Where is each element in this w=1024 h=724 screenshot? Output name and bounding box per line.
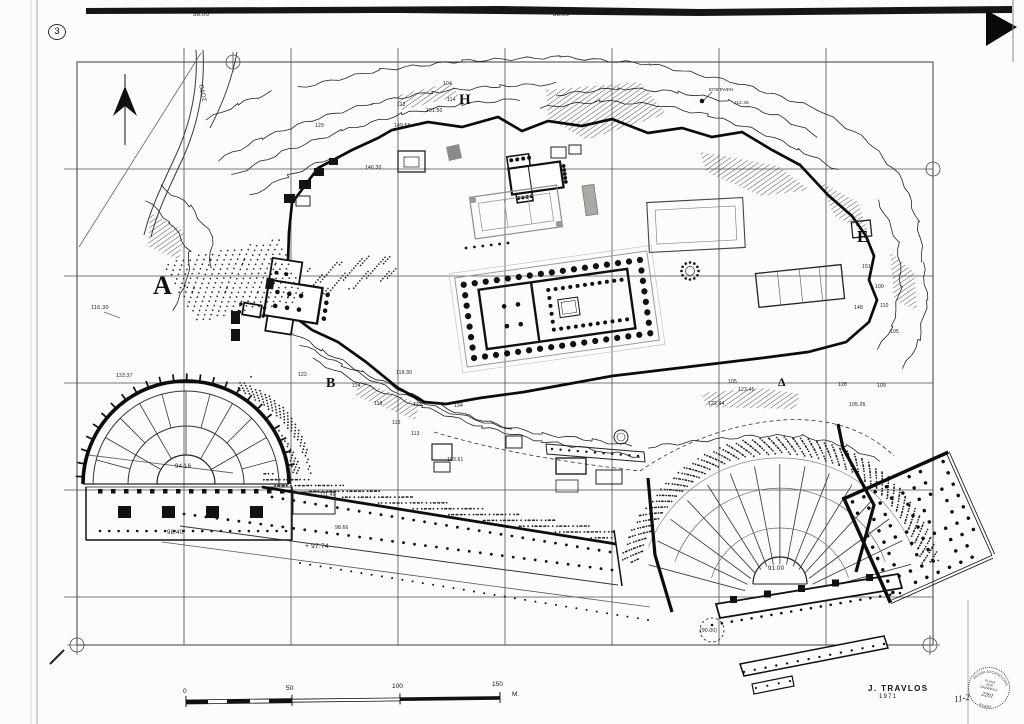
roman-building	[647, 198, 745, 253]
elevation-label: + 97.74	[305, 544, 329, 551]
odeon-stage-piers	[98, 489, 287, 532]
area-letter: B	[326, 377, 335, 391]
parthenon	[449, 245, 665, 372]
elevation-label: 133.37	[116, 374, 133, 379]
elevation-label: 114	[447, 98, 456, 103]
elevation-label: 105.26	[849, 403, 866, 408]
museum-building	[755, 265, 844, 308]
elevation-label: 122.44	[708, 402, 725, 407]
altar	[582, 184, 598, 215]
elevation-label: ΕΠΙΓΡΑΦΗ	[709, 88, 733, 93]
elevation-label: 151.50	[426, 109, 443, 114]
elevation-label: 149.58	[394, 124, 411, 129]
elevation-label: 123	[413, 403, 422, 408]
scale-bar	[186, 692, 500, 707]
stamp-arc-bottom: ATHENS	[978, 702, 993, 711]
gray-pedestal	[446, 144, 462, 161]
north-arrow-icon	[113, 74, 137, 145]
round-temple	[680, 261, 700, 281]
propylaea	[261, 258, 333, 340]
elevation-label: 111.49	[320, 493, 336, 498]
scale-tick-label: 150	[492, 682, 503, 689]
acropolis-circuit-wall	[288, 117, 877, 404]
area-letter: A	[153, 273, 172, 299]
elevation-label: 110	[880, 304, 889, 309]
area-letter: E	[857, 228, 868, 245]
elevation-label: 119.30	[396, 371, 412, 376]
elevation-label: 128	[838, 383, 847, 388]
terrain-hatching	[148, 82, 917, 420]
elevation-label: 105	[728, 380, 737, 385]
grid-marker-circles	[67, 52, 940, 655]
elevation-label: 146.30	[365, 166, 382, 171]
elevation-label: 91.00	[768, 566, 784, 572]
temple-athena-nike	[238, 302, 266, 318]
elevation-label: 151	[862, 265, 871, 270]
scale-tick-label: 0	[183, 689, 187, 696]
registration-arrow-icon	[986, 10, 1017, 46]
elevation-label: 100	[875, 285, 884, 290]
elevation-label: 103.61	[447, 458, 464, 463]
elevation-label: 116.30	[91, 306, 109, 312]
surveyor-name: J. TRAVLOS	[868, 684, 929, 693]
elevation-label: 115	[392, 421, 401, 426]
svg-text:ATHENS: ATHENS	[978, 702, 993, 711]
sheet-number-badge: 3	[48, 24, 66, 40]
area-letter: H	[459, 93, 471, 108]
elevation-label: 129	[315, 124, 324, 129]
plan-drawing	[0, 0, 1024, 724]
surveyor-credit: J. TRAVLOS 1971	[868, 684, 929, 700]
stippled-paths	[166, 239, 639, 457]
scale-tick-label: 100	[392, 684, 403, 691]
elevation-label: 112	[397, 103, 406, 108]
access-roads	[79, 50, 237, 473]
stamp-number: 2201	[981, 692, 994, 700]
elevation-label: (90.00)	[700, 629, 717, 634]
elevation-label: 134	[454, 404, 463, 409]
elevation-label: 118	[374, 402, 383, 407]
elevation-label: 148	[854, 306, 863, 311]
elevation-label: 38.00	[553, 12, 569, 18]
excavation-stamp: AGORA EXCAVATIONS ATHENS PLANS AND DRAWI…	[961, 660, 1017, 716]
elevation-label: 94.16	[175, 464, 191, 470]
elevation-label: 105	[890, 330, 899, 335]
area-letter: Δ	[778, 376, 786, 388]
survey-year: 1971	[879, 694, 929, 700]
elevation-label: 98.40	[167, 530, 183, 536]
elevation-label: 123.46	[738, 388, 755, 393]
stoa-of-eumenes	[162, 473, 650, 621]
erechtheion	[507, 149, 569, 203]
contour-lines	[145, 56, 928, 462]
scan-artifacts	[31, 0, 1017, 724]
scale-tick-label: 50	[286, 686, 293, 693]
elevation-label: 104	[443, 82, 452, 87]
elevation-label: 109	[877, 384, 886, 389]
elevation-label: 112.45	[734, 101, 749, 106]
elevation-label: 114	[352, 384, 361, 389]
acropolis-site-plan-sheet: AHBΔE 38.0038.00ΟΔΟΣ129104114112151.5014…	[0, 0, 1024, 724]
elevation-label: 113	[411, 432, 420, 437]
odeon-herodes-atticus	[76, 374, 312, 485]
elevation-label: 38.00	[193, 12, 209, 18]
scale-unit-label: M.	[512, 692, 519, 699]
elevation-label: 122	[298, 373, 307, 378]
elevation-label: 98.66	[335, 526, 349, 531]
